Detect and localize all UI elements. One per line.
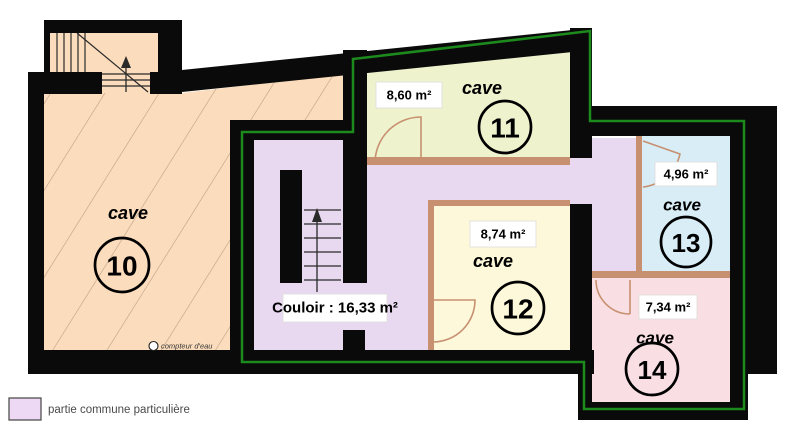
room-13-type-label: cave <box>663 196 701 215</box>
wall-room10-left <box>28 72 44 374</box>
water-meter-label: compteur d'eau <box>161 342 213 351</box>
room-11-area-label: 8,60 m² <box>387 88 432 103</box>
partition-room11-corridor <box>367 157 570 165</box>
water-meter-icon <box>149 342 158 351</box>
room-12-area-label: 8,74 m² <box>481 227 526 242</box>
wall-room14-bottom <box>578 402 748 420</box>
room-11-type-label: cave <box>462 78 502 98</box>
partition-room13-left <box>636 132 642 274</box>
wall-stair-left <box>280 170 302 283</box>
room-14-area-label: 7,34 m² <box>646 300 691 315</box>
floor-plan-drawing: compteur d'eau cave 10 8,60 m² cave 11 8… <box>0 0 800 447</box>
wall-right-outer <box>730 106 777 374</box>
wall-room11-right <box>570 28 592 158</box>
room-12-type-label: cave <box>473 251 513 271</box>
partition-room12-top <box>428 200 570 206</box>
wall-room11-left-stair-right <box>343 50 367 283</box>
corridor-labels: Couloir : 16,33 m² <box>272 294 398 322</box>
floor-plan-canvas: compteur d'eau cave 10 8,60 m² cave 11 8… <box>0 0 800 447</box>
room-13-area-label: 4,96 m² <box>664 167 709 182</box>
partition-room12-left <box>428 200 434 350</box>
wall-corridor-top <box>230 120 354 140</box>
room-12-number: 12 <box>502 294 533 325</box>
partition-room14-top <box>592 271 730 278</box>
wall-under-alcove-right <box>150 72 182 94</box>
corridor-label: Couloir : 16,33 m² <box>272 300 398 317</box>
legend-swatch <box>9 398 41 420</box>
room-14-number: 14 <box>638 355 667 385</box>
room-13-number: 13 <box>672 228 701 258</box>
room-10-type-label: cave <box>108 203 148 223</box>
wall-corridor-stub <box>343 330 365 374</box>
room-10-number: 10 <box>106 251 137 282</box>
room-11-number: 11 <box>490 113 520 144</box>
legend-label: partie commune particulière <box>48 404 190 416</box>
